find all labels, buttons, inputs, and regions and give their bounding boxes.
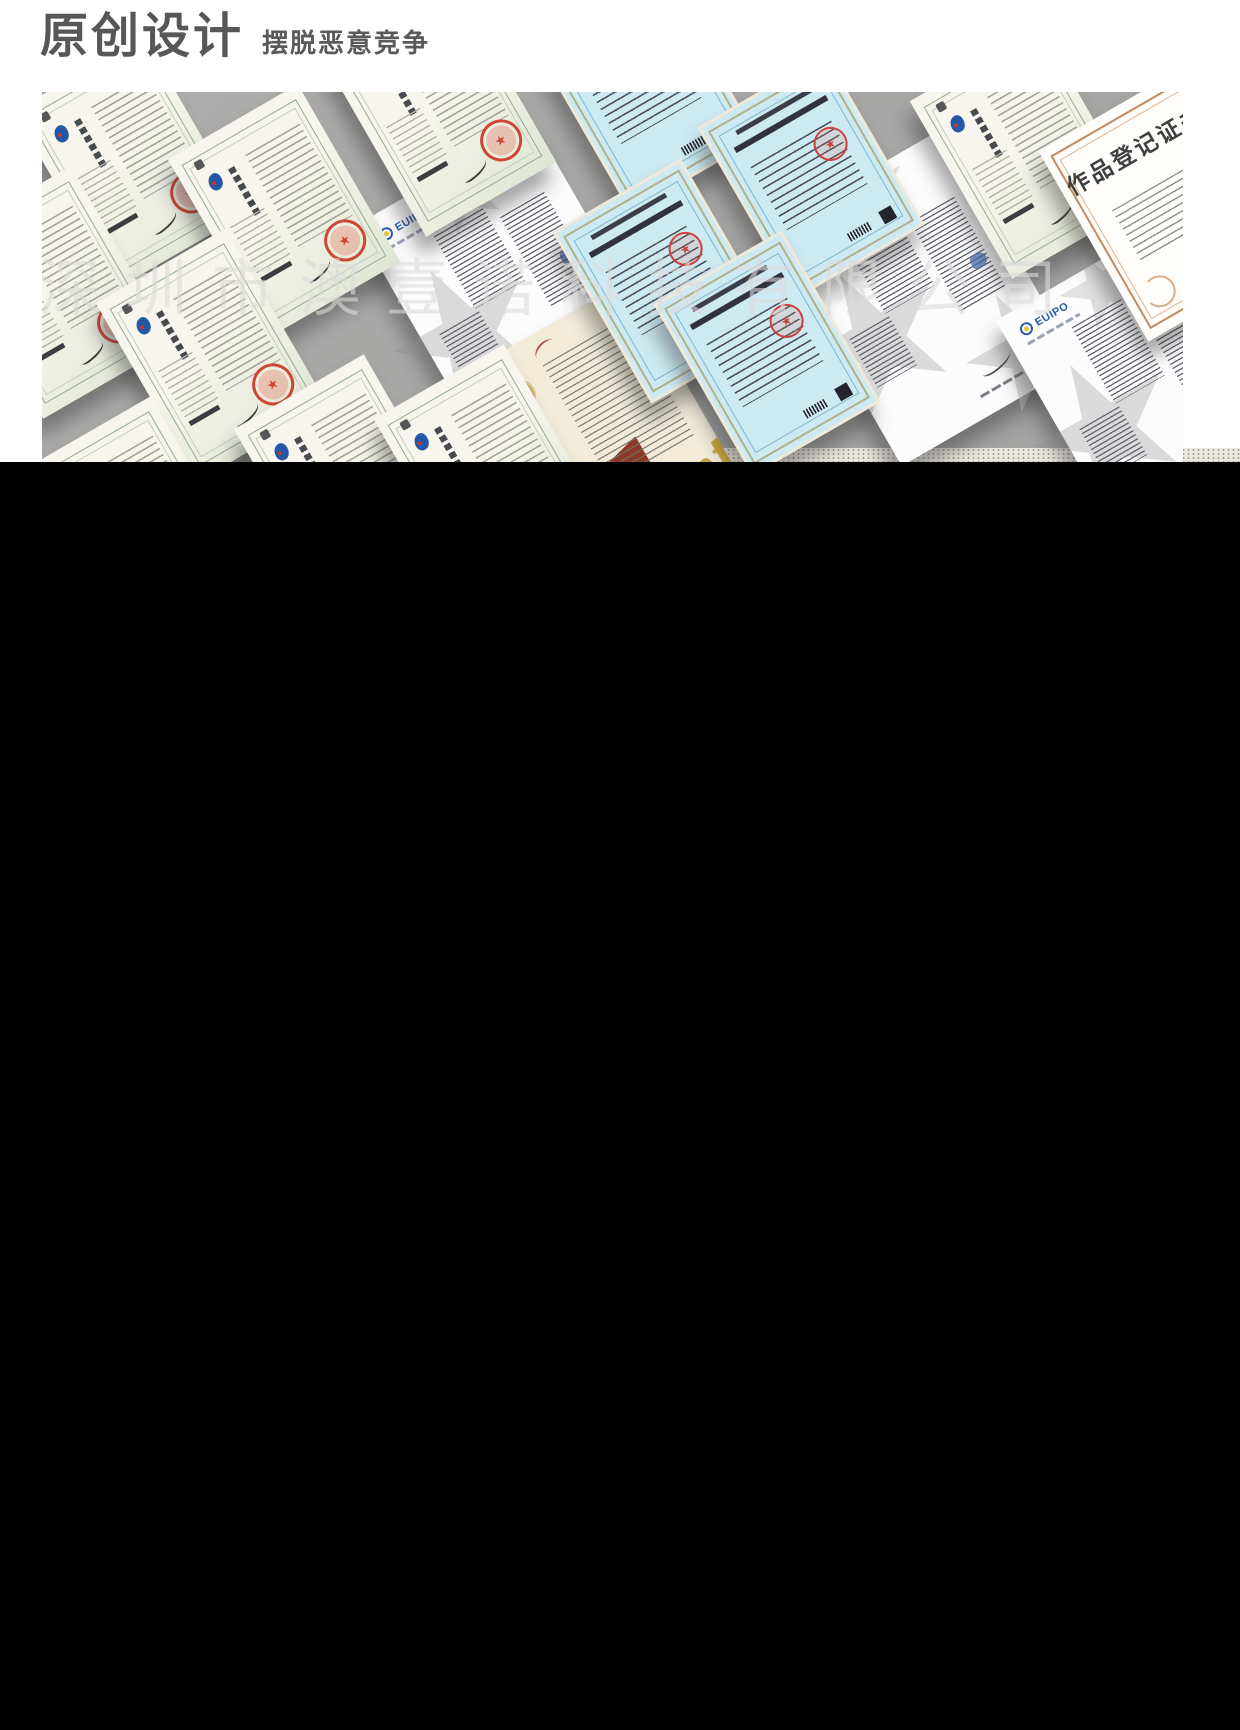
page: { "header": { "title": "原创设计", "subtitle… [0,0,1240,1730]
section-header: 原创设计 摆脱恶意竞争 [40,8,430,66]
euipo-logo-icon [1018,320,1036,338]
certificates-collage: 深圳市澳壹诺科技有限公司 EUIPOEUIPOEUIPOPatent★★★★★★… [42,92,1183,462]
page-title: 原创设计 [40,8,244,66]
page-subtitle: 摆脱恶意竞争 [262,23,430,60]
bottom-black-panel [0,462,1240,1730]
